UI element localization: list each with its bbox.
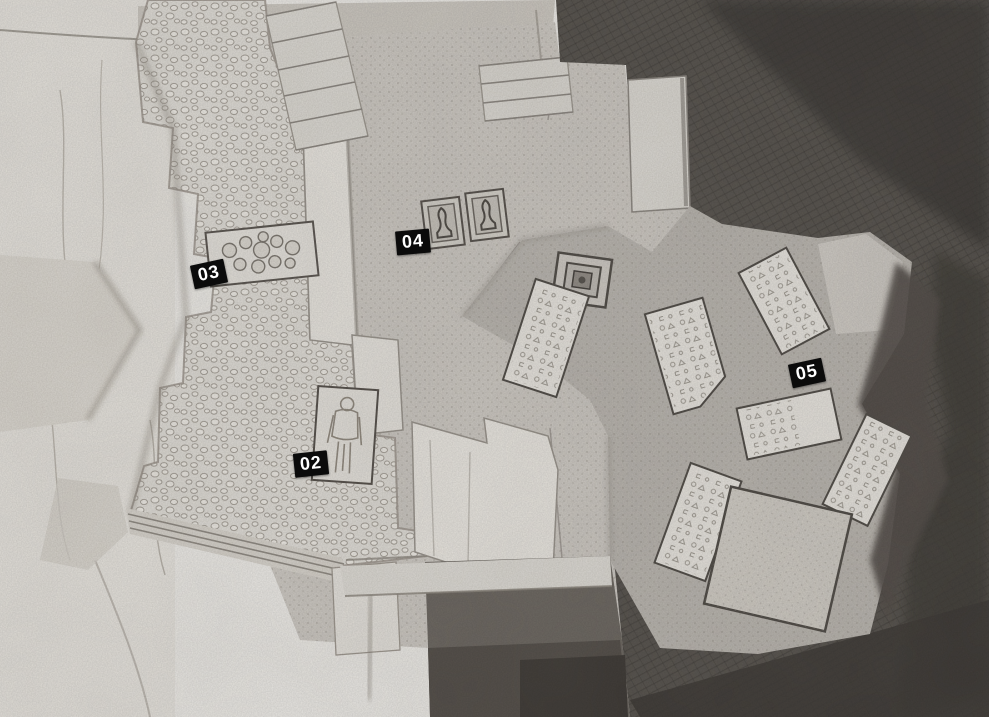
map-marker-02: 02 [293,450,329,477]
map-marker-04: 04 [395,229,431,256]
tonal-cloud-overlay [0,0,989,717]
pencil-map-drawing [0,0,989,717]
scanned-map-page: 02 03 04 05 [0,0,989,717]
